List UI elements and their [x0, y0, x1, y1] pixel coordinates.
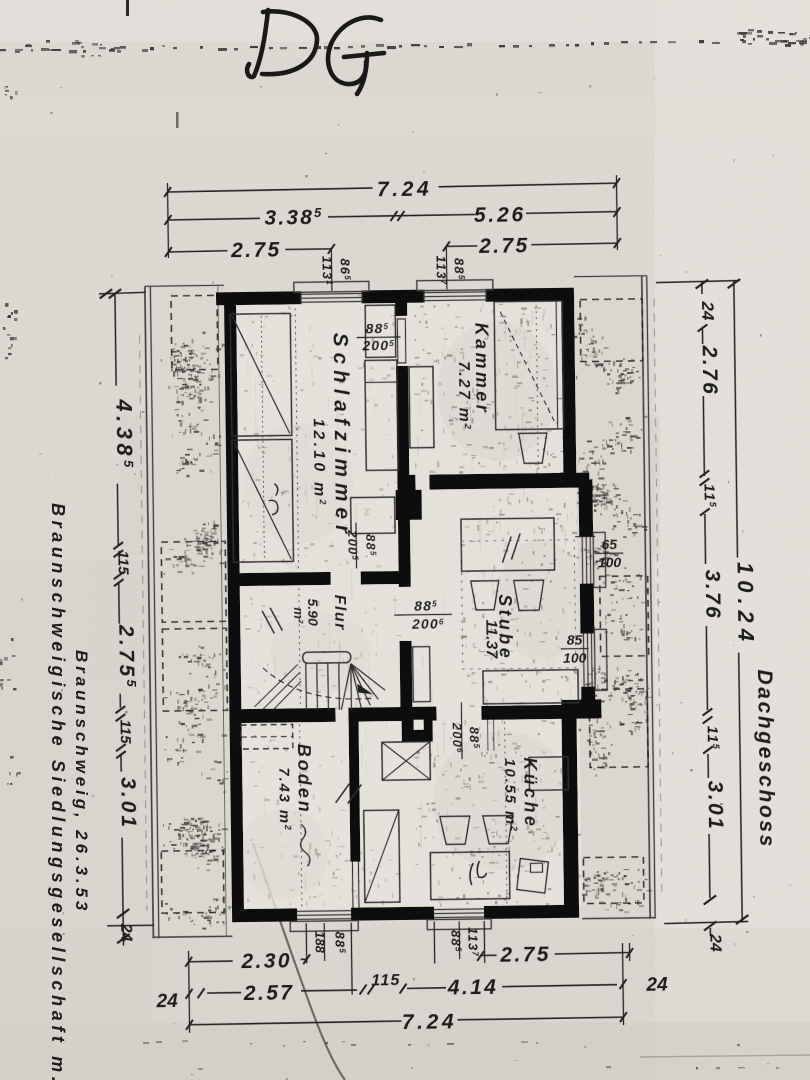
svg-text:m²: m² — [291, 607, 306, 624]
svg-text:5.26: 5.26 — [474, 203, 526, 227]
svg-text:7.24: 7.24 — [377, 178, 433, 202]
svg-text:7.43 m2: 7.43 m2 — [275, 767, 293, 832]
svg-text:7.24: 7.24 — [402, 1010, 458, 1034]
svg-text:2.75: 2.75 — [478, 234, 530, 258]
svg-text:188: 188 — [312, 931, 327, 954]
svg-text:3.76: 3.76 — [701, 570, 725, 621]
svg-text:2.75: 2.75 — [230, 239, 282, 263]
svg-text:12.10 m2: 12.10 m2 — [310, 418, 328, 508]
svg-text:Dachgeschoss: Dachgeschoss — [753, 669, 778, 849]
svg-text:5.90: 5.90 — [305, 598, 321, 626]
svg-text:2.30: 2.30 — [240, 949, 292, 973]
svg-text:100: 100 — [563, 650, 587, 666]
svg-text:4.14: 4.14 — [447, 976, 499, 1000]
svg-text:2.75: 2.75 — [499, 943, 551, 967]
svg-text:100: 100 — [598, 554, 622, 570]
svg-text:24: 24 — [156, 991, 179, 1012]
svg-text:24: 24 — [706, 933, 723, 952]
svg-text:Kammer: Kammer — [471, 323, 492, 416]
svg-text:2.57: 2.57 — [243, 981, 295, 1005]
svg-text:2.76: 2.76 — [698, 345, 722, 397]
svg-text:3.01: 3.01 — [116, 777, 140, 830]
svg-text:24: 24 — [645, 975, 668, 996]
svg-text:65: 65 — [601, 536, 617, 552]
svg-text:10.24: 10.24 — [733, 562, 759, 647]
svg-text:Schlafzimmer: Schlafzimmer — [328, 333, 354, 539]
svg-text:24: 24 — [698, 300, 717, 321]
svg-text:Braunschweig, 26.3.53: Braunschweig, 26.3.53 — [72, 650, 91, 914]
svg-text:Flur: Flur — [331, 595, 348, 631]
svg-text:115: 115 — [371, 972, 400, 989]
svg-text:85: 85 — [567, 632, 583, 648]
svg-text:11.37: 11.37 — [482, 619, 500, 659]
svg-text:Küche: Küche — [520, 757, 541, 829]
svg-text:115: 115 — [117, 720, 134, 745]
svg-text:7.27 m2: 7.27 m2 — [455, 361, 473, 431]
svg-text:3.01: 3.01 — [703, 781, 727, 832]
svg-text:Braunschweigische Siedlungsge: Braunschweigische Siedlungsgesellschaft … — [48, 503, 68, 1080]
svg-text:Boden: Boden — [294, 744, 315, 815]
svg-text:10.55 m2: 10.55 m2 — [501, 758, 519, 833]
